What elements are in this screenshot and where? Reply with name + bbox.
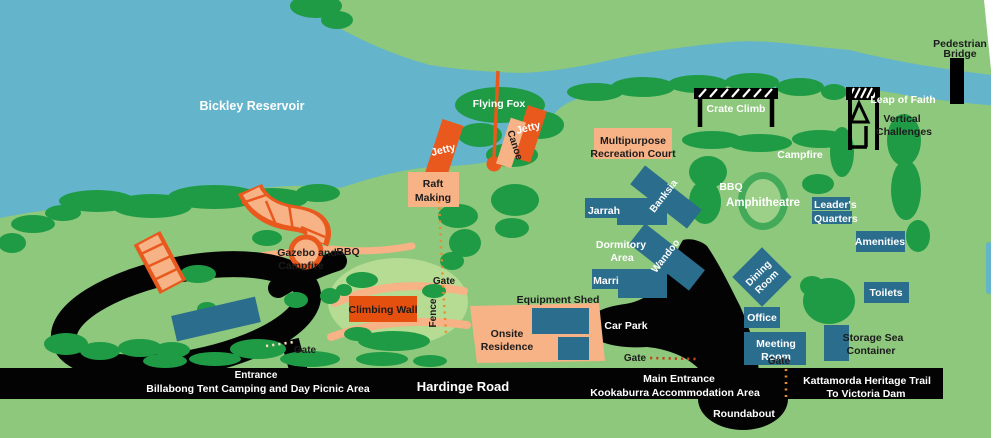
label-vertical-challenges-1: Vertical: [883, 113, 920, 125]
label-equipment-shed: Equipment Shed: [517, 294, 600, 306]
label-flying-fox: Flying Fox: [473, 98, 526, 110]
label-meeting-room-1: Meeting: [756, 338, 796, 350]
label-hardinge-road: Hardinge Road: [417, 379, 510, 394]
label-main-entrance-1: Main Entrance: [643, 373, 715, 385]
label-gate-east: Gate: [768, 356, 791, 367]
label-storage-1: Storage Sea: [843, 332, 904, 344]
label-gazebo-campfire-1: Gazebo and: [277, 247, 337, 259]
label-raft-making-1: Raft: [423, 178, 444, 190]
label-bbq-west: BBQ: [336, 246, 359, 258]
label-raft-making-2: Making: [415, 192, 451, 204]
label-leap-of-faith: Leap of Faith: [870, 94, 935, 106]
label-bickley-reservoir: Bickley Reservoir: [200, 99, 305, 113]
label-dormitory-1: Dormitory: [596, 239, 646, 251]
label-multipurpose-1: Multipurpose: [600, 135, 666, 147]
label-campfire: Campfire: [777, 149, 823, 161]
label-fence: Fence: [428, 298, 439, 327]
label-amphitheatre: Amphitheatre: [726, 197, 800, 209]
label-jarrah: Jarrah: [588, 205, 620, 217]
label-roundabout: Roundabout: [713, 408, 775, 420]
label-entrance-west-1: Entrance: [235, 370, 278, 381]
label-multipurpose-2: Recreation Court: [590, 148, 676, 160]
label-office: Office: [747, 312, 777, 324]
label-amenities-east: Amenities: [855, 236, 905, 248]
label-gate-north: Gate: [433, 276, 456, 287]
label-entrance-west-2: Billabong Tent Camping and Day Picnic Ar…: [146, 383, 370, 395]
label-gate-main: Gate: [624, 353, 647, 364]
label-bbq-east: BBQ: [719, 181, 742, 193]
label-onsite-residence-1: Onsite: [491, 328, 524, 340]
label-gate-west: Gate: [294, 345, 317, 356]
label-leaders-quarters-2: Quarters: [814, 213, 858, 225]
label-kattamorda-2: To Victoria Dam: [827, 388, 906, 400]
equipment-shed-building-2: [558, 337, 589, 360]
label-kattamorda-1: Kattamorda Heritage Trail: [803, 375, 931, 387]
label-dormitory-2: Area: [610, 252, 634, 264]
label-crate-climb: Crate Climb: [707, 103, 766, 115]
label-pedestrian-bridge-2: Bridge: [943, 48, 976, 60]
map-canvas: Bickley Reservoir Flying Fox Jetty Jetty…: [0, 0, 1000, 438]
camp-site-map: Bickley Reservoir Flying Fox Jetty Jetty…: [0, 0, 1000, 438]
label-onsite-residence-2: Residence: [481, 341, 534, 353]
label-main-entrance-2: Kookaburra Accommodation Area: [590, 387, 760, 399]
label-toilets: Toilets: [869, 287, 902, 299]
label-climbing-wall: Climbing Wall: [348, 304, 417, 316]
label-gazebo-campfire-2: Campfire: [278, 260, 324, 272]
label-car-park: Car Park: [604, 320, 647, 332]
label-marri: Marri: [593, 275, 619, 287]
label-vertical-challenges-2: Challenges: [876, 126, 932, 138]
equipment-shed-building: [532, 308, 589, 334]
label-leaders-quarters-1: Leader's: [814, 199, 857, 211]
label-storage-2: Container: [846, 345, 895, 357]
pedestrian-bridge-shape: [950, 58, 964, 104]
